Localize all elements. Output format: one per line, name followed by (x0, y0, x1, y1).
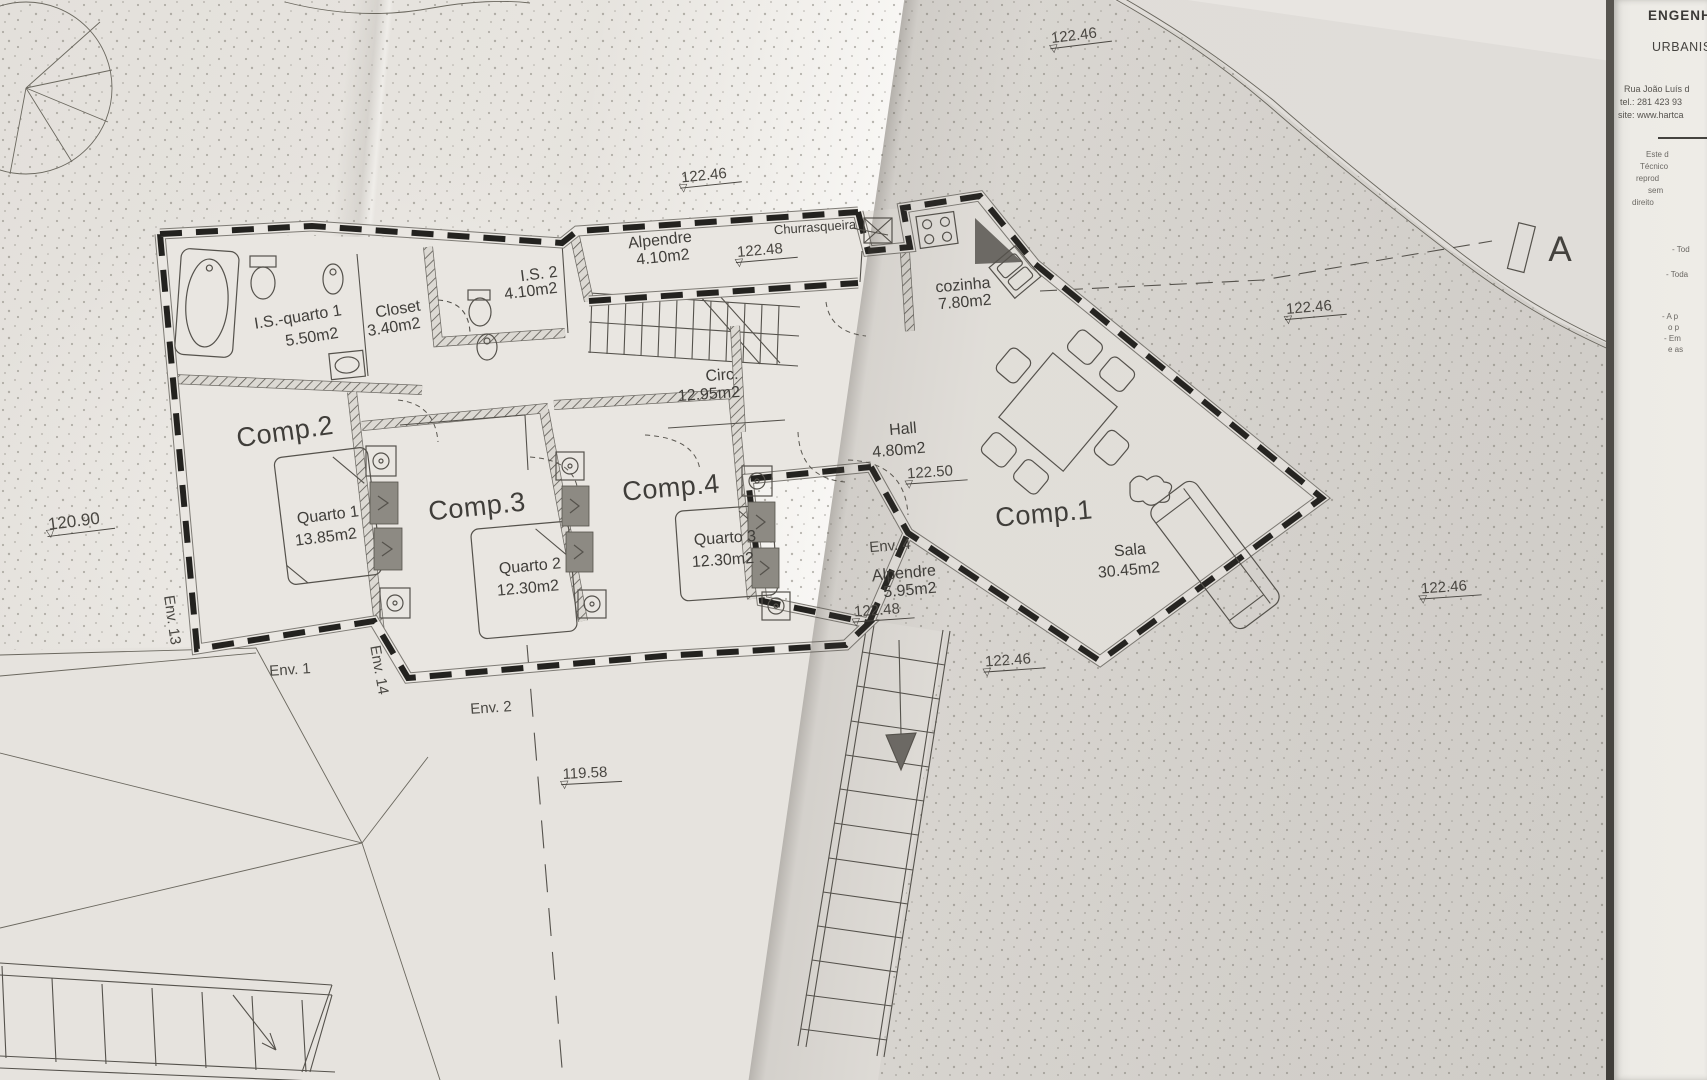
elevation-triangle-icon: ▽ (678, 181, 688, 195)
title-block-address: Rua João Luís d (1624, 84, 1690, 94)
title-block-heading2: URBANIS (1652, 40, 1707, 54)
title-block: ENGENHA URBANIS Rua João Luís d tel.: 28… (1614, 0, 1707, 1080)
floor-plan-photo: I.S.-quarto 1 5.50m2 Closet 3.40m2 I.S. … (0, 0, 1707, 1080)
title-block-note: - Toda (1666, 270, 1688, 279)
title-block-note: - Tod (1672, 245, 1690, 254)
page-fold-edge (1606, 0, 1614, 1080)
title-block-fineprint: Técnico (1640, 162, 1668, 171)
env4-label: Env. 4 (869, 536, 912, 557)
room-label-circ: Circ. (705, 366, 739, 386)
elevation-triangle-icon: ▽ (1283, 313, 1293, 327)
title-block-fineprint: sem (1648, 186, 1663, 195)
section-marker-a: A (1548, 230, 1571, 270)
title-block-fineprint: direito (1632, 198, 1654, 207)
elevation-marker: 119.58▽ (560, 763, 622, 785)
title-block-heading1: ENGENHA (1648, 8, 1707, 23)
title-block-site: site: www.hartca (1618, 110, 1684, 120)
env2-label: Env. 2 (470, 698, 513, 718)
title-block-fineprint: reprod (1636, 174, 1659, 183)
title-block-tel: tel.: 281 423 93 (1620, 97, 1682, 107)
elevation-triangle-icon: ▽ (851, 615, 860, 629)
elevation-triangle-icon: ▽ (45, 526, 55, 540)
elevation-triangle-icon: ▽ (1049, 41, 1059, 55)
title-block-rule (1658, 137, 1707, 139)
elevation-triangle-icon: ▽ (734, 256, 744, 270)
env1-label: Env. 1 (269, 660, 312, 680)
title-block-note: - A p (1662, 312, 1678, 321)
title-block-note: o p (1668, 323, 1679, 332)
title-block-note: - Em (1664, 334, 1681, 343)
elevation-triangle-icon: ▽ (560, 778, 569, 791)
elevation-triangle-icon: ▽ (904, 477, 913, 491)
room-label-hall: Hall (888, 420, 917, 440)
title-block-note: e as (1668, 345, 1683, 354)
elevation-triangle-icon: ▽ (982, 665, 991, 679)
room-label-sala: Sala (1113, 541, 1146, 562)
elevation-value: 119.58 (560, 763, 622, 785)
elevation-triangle-icon: ▽ (1418, 592, 1427, 606)
title-block-fineprint: Este d (1646, 150, 1669, 159)
